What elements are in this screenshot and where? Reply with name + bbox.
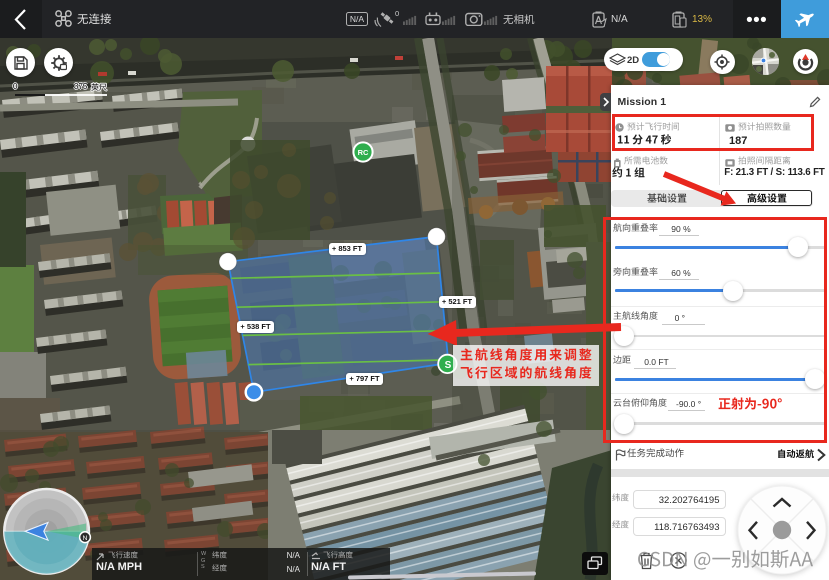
svg-text:N: N bbox=[83, 535, 88, 542]
svg-text:S: S bbox=[445, 360, 452, 371]
svg-text:RC: RC bbox=[358, 148, 369, 157]
